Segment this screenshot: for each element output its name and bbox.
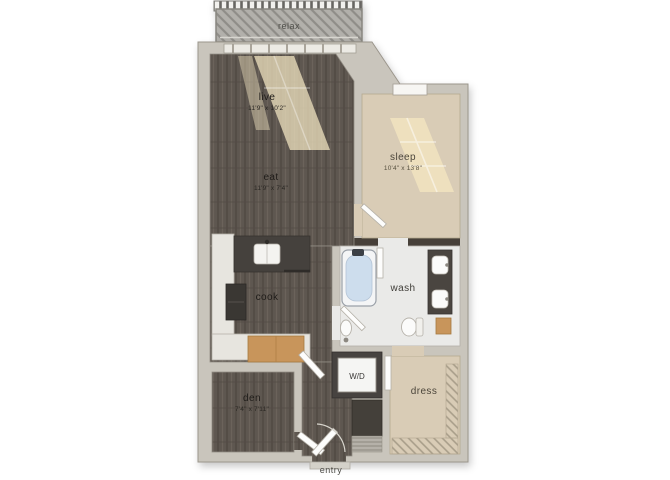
eat-label: eat	[263, 172, 278, 183]
bathtub-basin	[346, 255, 372, 301]
wash-label: wash	[390, 283, 416, 294]
pedestal-sink-base	[344, 338, 349, 343]
floorplan-svg: relax live 11'9" x 10'2" eat 11'9" x 7'4…	[0, 0, 670, 480]
vanity-faucet-2-icon	[445, 297, 449, 301]
dress-door-opening	[392, 346, 424, 356]
pedestal-sink	[341, 320, 352, 336]
hall-closet-shelves	[352, 436, 382, 452]
sleep-bath-door	[377, 248, 383, 278]
live-label: live	[259, 92, 276, 103]
live-window	[224, 44, 356, 53]
dress-label: dress	[411, 386, 437, 397]
entry-label: entry	[320, 465, 343, 475]
relax-label: relax	[278, 21, 300, 31]
toilet	[402, 318, 417, 336]
den-dims: 7'4" x 7'11"	[235, 406, 269, 413]
cook-label: cook	[256, 292, 279, 303]
bath-stool	[436, 318, 451, 334]
dress-shelving-bottom	[392, 438, 458, 454]
dress-door	[385, 356, 391, 390]
vanity-faucet-1-icon	[445, 263, 449, 267]
laundry-label: W/D	[349, 372, 365, 381]
toilet-tank	[416, 318, 423, 336]
den-label: den	[243, 393, 261, 404]
sleep-dims: 10'4" x 13'8"	[384, 165, 423, 172]
kitchen-faucet-icon	[265, 240, 269, 244]
live-dims: 11'9" x 10'2"	[248, 105, 286, 112]
eat-dims: 11'9" x 7'4"	[254, 185, 288, 192]
sleep-label: sleep	[390, 152, 416, 163]
sleep-bath-door-opening	[378, 238, 408, 247]
sleep-window	[393, 84, 427, 95]
bathtub-faucet-icon	[352, 249, 364, 256]
hall-closet	[352, 400, 382, 436]
bath-hall-door-opening	[332, 306, 340, 340]
floorplan-image: relax live 11'9" x 10'2" eat 11'9" x 7'4…	[0, 0, 670, 480]
sleep-door-opening	[354, 204, 362, 236]
dress-shelving-right	[446, 364, 458, 438]
